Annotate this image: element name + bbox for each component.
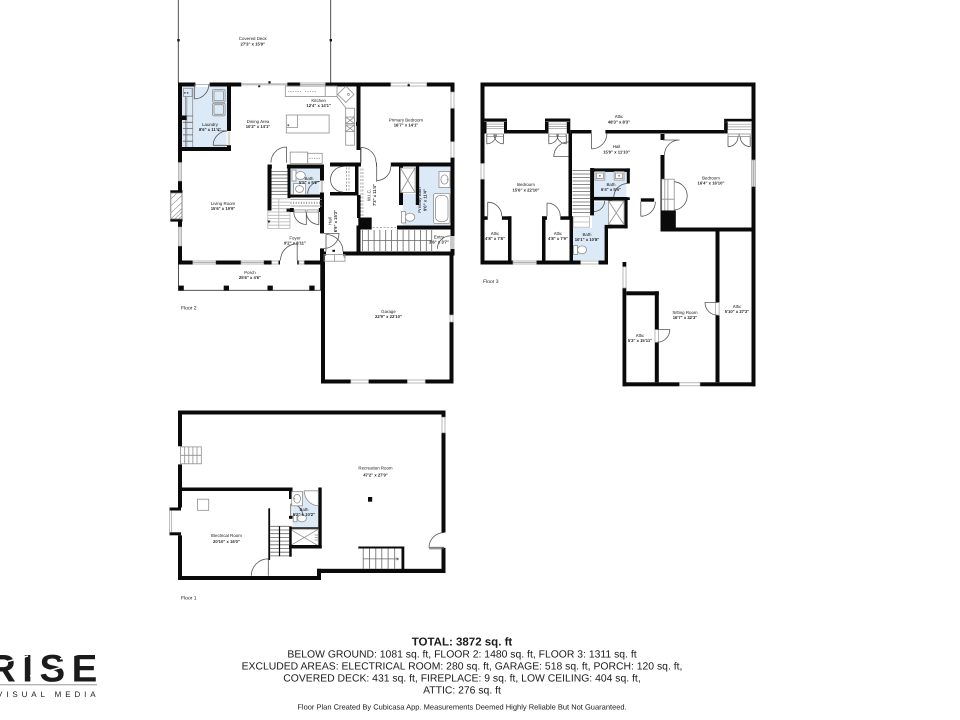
svg-text:9'2" x 8'11": 9'2" x 8'11" [284, 240, 306, 245]
svg-text:22'9" x 22'10": 22'9" x 22'10" [375, 314, 402, 319]
svg-text:Attic: Attic [615, 114, 624, 119]
svg-text:12'4" x 14'1": 12'4" x 14'1" [306, 103, 331, 108]
svg-text:Bedroom: Bedroom [517, 182, 535, 187]
svg-text:Recreation Room: Recreation Room [358, 466, 393, 471]
svg-text:16'4" x 16'10": 16'4" x 16'10" [698, 181, 725, 186]
svg-text:Floor 1: Floor 1 [181, 596, 197, 602]
svg-text:15'6" x 22'10": 15'6" x 22'10" [513, 188, 540, 193]
svg-text:W.I.C.: W.I.C. [367, 189, 372, 201]
svg-text:15'6" x 19'9": 15'6" x 19'9" [211, 206, 236, 211]
svg-text:5'10" x 27'2": 5'10" x 27'2" [725, 309, 750, 314]
svg-text:Floor 3: Floor 3 [483, 279, 499, 285]
svg-text:Electrical Room: Electrical Room [211, 533, 242, 538]
svg-text:47'2" x 27'9": 47'2" x 27'9" [363, 473, 388, 478]
svg-text:EXCLUDED AREAS: ELECTRICAL ROO: EXCLUDED AREAS: ELECTRICAL ROOM: 280 sq.… [242, 661, 683, 672]
svg-text:BELOW GROUND: 1081 sq. ft, FLO: BELOW GROUND: 1081 sq. ft, FLOOR 2: 1480… [287, 649, 636, 660]
svg-text:25'6" x 4'6": 25'6" x 4'6" [239, 275, 261, 280]
svg-text:5'3" x 15'11": 5'3" x 15'11" [628, 338, 652, 343]
svg-text:TOTAL: 3872 sq. ft: TOTAL: 3872 sq. ft [412, 637, 513, 649]
svg-text:5'5" x 5'2": 5'5" x 5'2" [299, 180, 319, 185]
svg-text:4'8" x 7'8": 4'8" x 7'8" [485, 236, 505, 241]
svg-text:Primary Bath: Primary Bath [417, 187, 422, 213]
svg-text:16'7" x 32'3": 16'7" x 32'3" [673, 315, 698, 320]
svg-text:20'10" x 16'0": 20'10" x 16'0" [213, 539, 240, 544]
svg-text:3'6" x 3'7": 3'6" x 3'7" [429, 240, 449, 245]
svg-text:7'3" x 11'4": 7'3" x 11'4" [372, 184, 377, 206]
svg-text:9'0" x 11'4": 9'0" x 11'4" [423, 189, 428, 211]
svg-text:15'9" x 11'10": 15'9" x 11'10" [603, 150, 630, 155]
svg-text:Hall: Hall [613, 144, 621, 149]
svg-text:48'3" x 8'3": 48'3" x 8'3" [608, 120, 630, 125]
svg-text:27'3" x 15'9": 27'3" x 15'9" [241, 41, 266, 46]
svg-text:RISE: RISE [0, 648, 104, 691]
svg-text:6'9" x 15'3": 6'9" x 15'3" [333, 210, 338, 232]
svg-text:Covered Deck: Covered Deck [239, 36, 268, 41]
svg-text:5'2" x 10'2": 5'2" x 10'2" [293, 512, 315, 517]
svg-text:COVERED DECK: 431 sq. ft, FIRE: COVERED DECK: 431 sq. ft, FIREPLACE: 9 s… [283, 673, 640, 684]
svg-text:10'2" x 14'1": 10'2" x 14'1" [246, 124, 271, 129]
svg-text:10'1" x 10'8": 10'1" x 10'8" [575, 237, 600, 242]
svg-text:16'7" x 14'1": 16'7" x 14'1" [394, 122, 419, 127]
svg-text:8'6" x 11'4": 8'6" x 11'4" [199, 127, 221, 132]
svg-text:ATTIC: 276 sq. ft: ATTIC: 276 sq. ft [423, 685, 501, 696]
svg-text:4'8" x 7'9": 4'8" x 7'9" [548, 236, 568, 241]
svg-text:Floor Plan Created By Cubicasa: Floor Plan Created By Cubicasa App. Meas… [297, 703, 626, 712]
svg-text:Hall: Hall [328, 217, 333, 225]
svg-text:Floor 2: Floor 2 [181, 306, 197, 312]
svg-text:VISUAL MEDIA: VISUAL MEDIA [0, 690, 100, 699]
